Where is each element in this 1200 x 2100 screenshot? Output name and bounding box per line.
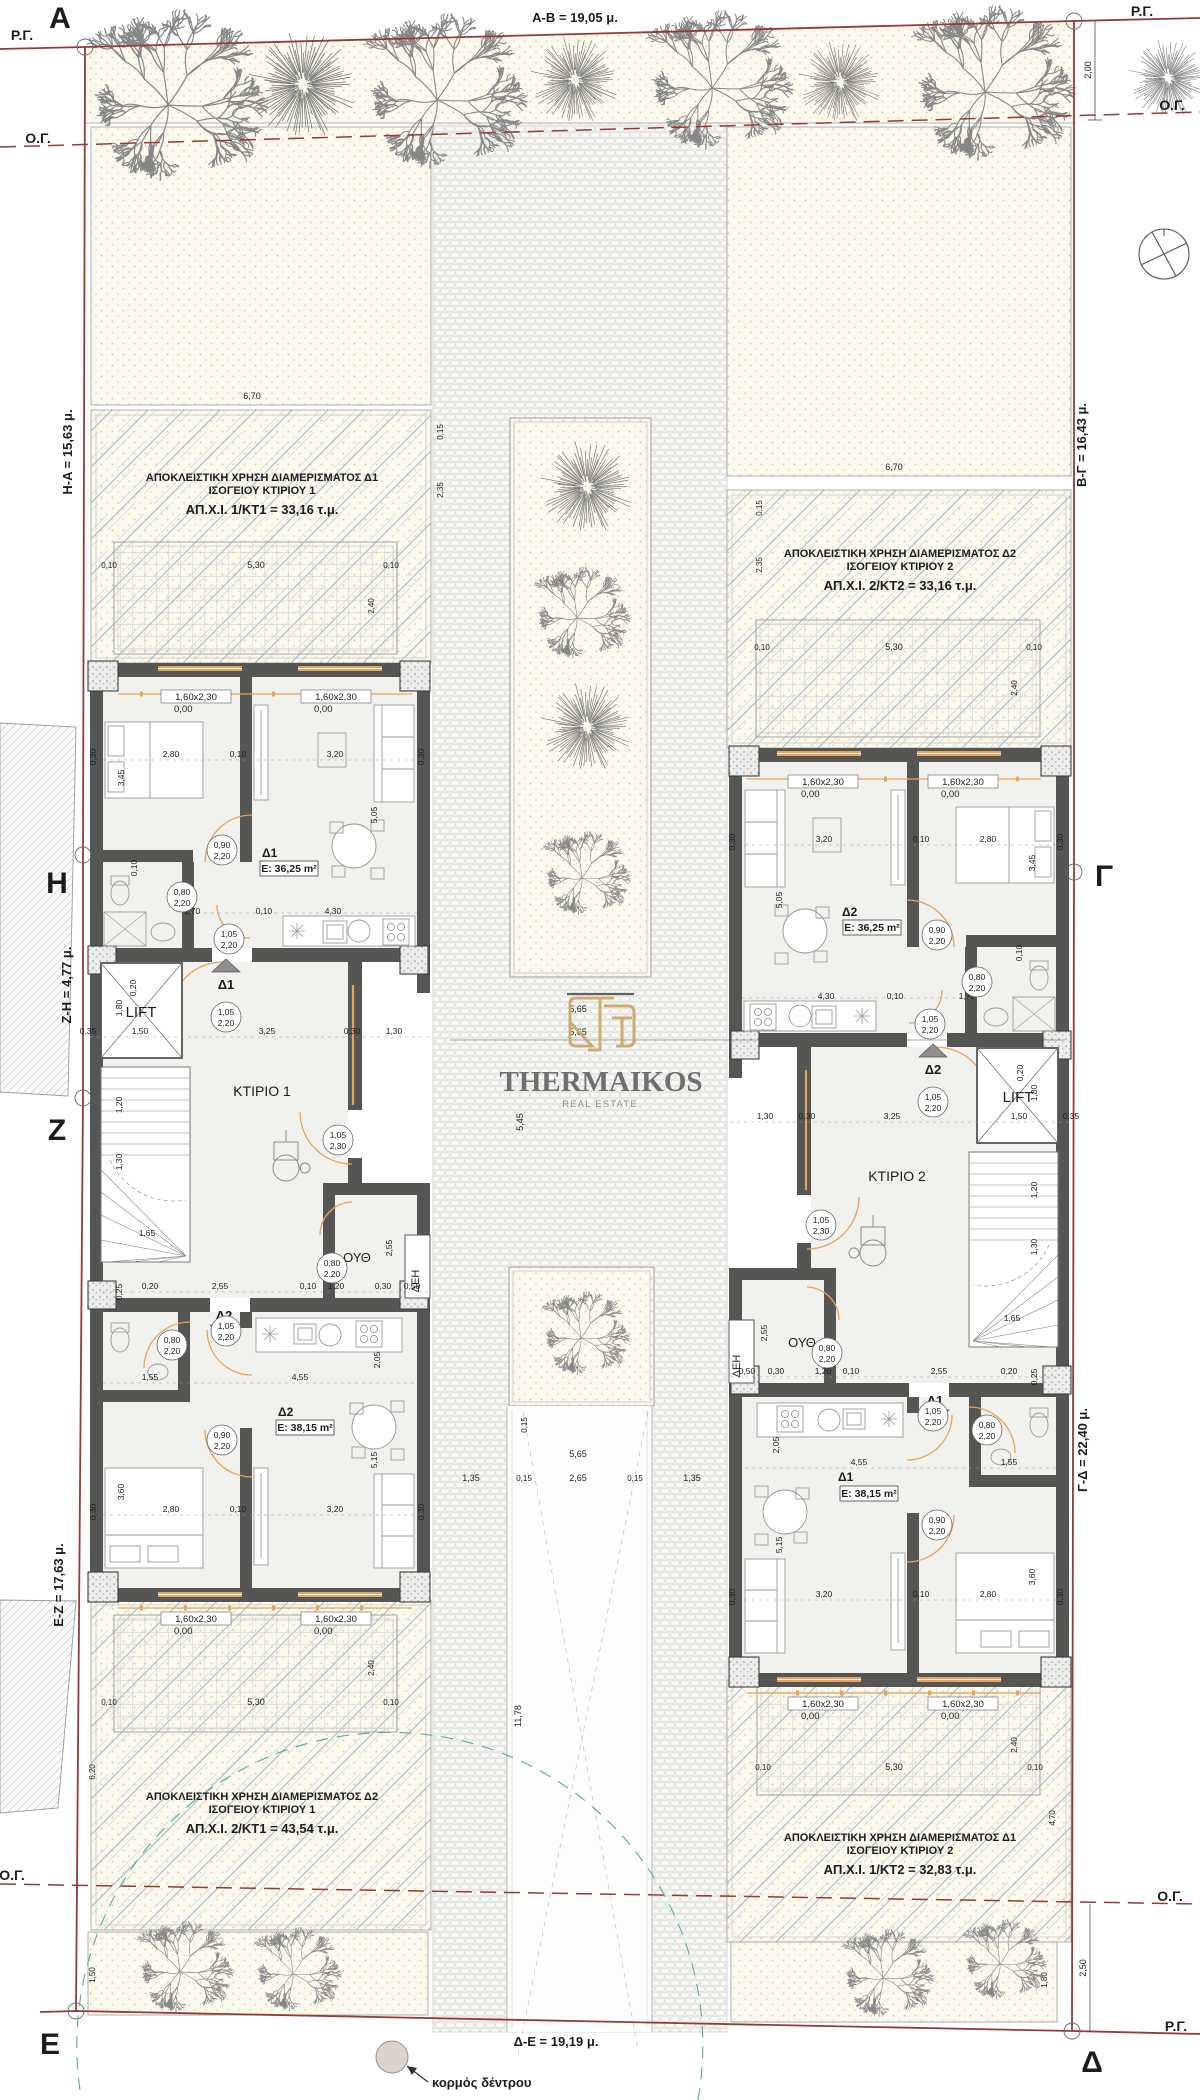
- svg-text:2,20: 2,20: [979, 1431, 996, 1441]
- svg-text:2,35: 2,35: [436, 482, 445, 498]
- svg-text:0,30: 0,30: [799, 1111, 816, 1121]
- svg-text:0,10: 0,10: [101, 561, 117, 570]
- svg-text:0,30: 0,30: [727, 1588, 737, 1605]
- svg-text:0,10: 0,10: [755, 1763, 771, 1772]
- svg-text:E: E: [40, 2028, 60, 2061]
- svg-text:2,20: 2,20: [922, 1025, 939, 1035]
- svg-text:6,20: 6,20: [88, 1764, 97, 1780]
- svg-text:ΑΠΟΚΛΕΙΣΤΙΚΗ ΧΡΗΣΗ ΔΙΑΜΕΡΙΣΜΑΤ: ΑΠΟΚΛΕΙΣΤΙΚΗ ΧΡΗΣΗ ΔΙΑΜΕΡΙΣΜΑΤΟΣ Δ1: [784, 1832, 1016, 1844]
- svg-text:ΙΣΟΓΕΙΟΥ ΚΤΙΡΙΟΥ 2: ΙΣΟΓΕΙΟΥ ΚΤΙΡΙΟΥ 2: [847, 561, 954, 573]
- svg-text:ΑΠ.Χ.Ι. 1/ΚΤ1 = 33,16 τ.μ.: ΑΠ.Χ.Ι. 1/ΚΤ1 = 33,16 τ.μ.: [186, 502, 339, 517]
- svg-text:E: 38,15 m²: E: 38,15 m²: [841, 1488, 897, 1500]
- svg-text:Δ1: Δ1: [262, 846, 278, 860]
- svg-text:3,45: 3,45: [116, 769, 126, 786]
- svg-text:0,30: 0,30: [416, 1503, 426, 1520]
- svg-text:0,30: 0,30: [1055, 1588, 1065, 1605]
- svg-text:5,15: 5,15: [369, 1451, 379, 1468]
- svg-text:0,35: 0,35: [80, 1026, 97, 1036]
- svg-text:Ο.Γ.: Ο.Γ.: [1157, 1888, 1183, 1904]
- svg-text:11,78: 11,78: [513, 1705, 523, 1727]
- svg-text:0,00: 0,00: [174, 704, 193, 715]
- svg-text:5,30: 5,30: [247, 1697, 265, 1707]
- svg-text:0,30: 0,30: [1055, 833, 1065, 850]
- svg-text:Z: Z: [48, 1114, 66, 1147]
- svg-text:0,10: 0,10: [101, 1698, 117, 1707]
- svg-text:0,30: 0,30: [88, 1503, 98, 1520]
- svg-text:0,20: 0,20: [1015, 1064, 1025, 1081]
- svg-text:A-B = 19,05 μ.: A-B = 19,05 μ.: [532, 10, 618, 25]
- svg-text:0,00: 0,00: [174, 1626, 193, 1637]
- svg-text:0,50: 0,50: [739, 1366, 756, 1376]
- svg-text:ΙΣΟΓΕΙΟΥ ΚΤΙΡΙΟΥ 1: ΙΣΟΓΕΙΟΥ ΚΤΙΡΙΟΥ 1: [209, 485, 316, 497]
- svg-text:0,10: 0,10: [230, 749, 247, 759]
- svg-text:0,10: 0,10: [913, 834, 930, 844]
- svg-text:1,05: 1,05: [221, 929, 238, 939]
- svg-text:0,10: 0,10: [383, 561, 399, 570]
- svg-text:0,10: 0,10: [1026, 643, 1042, 652]
- svg-text:0,10: 0,10: [843, 1366, 860, 1376]
- svg-text:2,20: 2,20: [925, 1103, 942, 1113]
- svg-text:0,30: 0,30: [88, 748, 98, 765]
- svg-text:0,20: 0,20: [128, 979, 138, 996]
- svg-text:2,40: 2,40: [367, 1660, 376, 1676]
- svg-text:0,80: 0,80: [819, 1343, 836, 1353]
- svg-text:0,15: 0,15: [436, 424, 445, 440]
- svg-text:1,50: 1,50: [1011, 1111, 1028, 1121]
- svg-text:5,65: 5,65: [569, 1004, 587, 1014]
- svg-text:0,30: 0,30: [344, 1026, 361, 1036]
- svg-text:2,20: 2,20: [214, 851, 231, 861]
- svg-text:Γ: Γ: [1095, 860, 1113, 893]
- svg-text:1,80: 1,80: [1040, 1972, 1049, 1988]
- svg-text:0,00: 0,00: [314, 1626, 333, 1637]
- svg-text:3,45: 3,45: [1027, 854, 1037, 871]
- svg-text:0,35: 0,35: [1063, 1111, 1080, 1121]
- svg-text:1,05: 1,05: [925, 1406, 942, 1416]
- svg-text:0,80: 0,80: [174, 887, 191, 897]
- svg-text:3,25: 3,25: [259, 1026, 276, 1036]
- svg-text:ΙΣΟΓΕΙΟΥ ΚΤΙΡΙΟΥ 2: ΙΣΟΓΕΙΟΥ ΚΤΙΡΙΟΥ 2: [847, 1845, 954, 1857]
- svg-text:3,20: 3,20: [816, 1589, 833, 1599]
- svg-text:ΑΠ.Χ.Ι. 2/ΚΤ1 = 43,54 τ.μ.: ΑΠ.Χ.Ι. 2/ΚΤ1 = 43,54 τ.μ.: [186, 1821, 339, 1836]
- svg-text:ΟΥΘ: ΟΥΘ: [343, 1250, 371, 1265]
- svg-text:3,60: 3,60: [1027, 1568, 1037, 1585]
- svg-text:Δ1: Δ1: [218, 977, 235, 992]
- svg-text:κορμός δέντρου: κορμός δέντρου: [432, 2075, 532, 2090]
- svg-text:ΑΠΟΚΛΕΙΣΤΙΚΗ ΧΡΗΣΗ ΔΙΑΜΕΡΙΣΜΑΤ: ΑΠΟΚΛΕΙΣΤΙΚΗ ΧΡΗΣΗ ΔΙΑΜΕΡΙΣΜΑΤΟΣ Δ1: [146, 472, 378, 484]
- svg-text:THERMAIKOS: THERMAIKOS: [499, 1066, 702, 1098]
- svg-text:3,60: 3,60: [116, 1483, 126, 1500]
- svg-text:1,65: 1,65: [139, 1228, 156, 1238]
- svg-text:0,10: 0,10: [1014, 944, 1024, 961]
- svg-text:2,55: 2,55: [931, 1366, 948, 1376]
- svg-text:5,30: 5,30: [885, 1762, 903, 1772]
- svg-text:0,15: 0,15: [520, 1417, 529, 1433]
- svg-text:1,60x2,30: 1,60x2,30: [942, 1699, 984, 1710]
- svg-text:2,30: 2,30: [813, 1226, 830, 1236]
- svg-text:E: 38,15 m²: E: 38,15 m²: [277, 1422, 333, 1434]
- svg-text:4,70: 4,70: [1048, 1810, 1057, 1826]
- svg-text:2,00: 2,00: [1083, 61, 1093, 79]
- svg-text:1,30: 1,30: [757, 1111, 774, 1121]
- svg-text:2,80: 2,80: [980, 834, 997, 844]
- svg-text:0,90: 0,90: [929, 1515, 946, 1525]
- svg-text:6,70: 6,70: [243, 391, 261, 401]
- svg-text:H-A = 15,63 μ.: H-A = 15,63 μ.: [60, 409, 75, 494]
- svg-text:LIFT: LIFT: [126, 1004, 157, 1021]
- svg-text:2,05: 2,05: [372, 1351, 382, 1368]
- svg-text:2,05: 2,05: [771, 1436, 781, 1453]
- svg-text:0,10: 0,10: [754, 643, 770, 652]
- svg-text:2,20: 2,20: [218, 1018, 235, 1028]
- svg-text:0,10: 0,10: [383, 1698, 399, 1707]
- svg-text:1,50: 1,50: [132, 1026, 149, 1036]
- svg-text:0,80: 0,80: [324, 1258, 341, 1268]
- svg-text:E-Z = 17,63 μ.: E-Z = 17,63 μ.: [51, 1543, 66, 1626]
- svg-text:1,20: 1,20: [1029, 1181, 1039, 1198]
- svg-text:0,20: 0,20: [142, 1281, 159, 1291]
- svg-text:1,60x2,30: 1,60x2,30: [175, 692, 217, 703]
- svg-text:5,45: 5,45: [515, 1113, 525, 1131]
- svg-text:ΚΤΙΡΙΟ 1: ΚΤΙΡΙΟ 1: [233, 1083, 291, 1099]
- svg-text:0,90: 0,90: [214, 840, 231, 850]
- svg-text:0,90: 0,90: [929, 925, 946, 935]
- svg-text:2,50: 2,50: [1078, 1959, 1088, 1977]
- svg-text:0,15: 0,15: [755, 500, 764, 516]
- svg-text:0,80: 0,80: [969, 972, 986, 982]
- svg-text:5,05: 5,05: [369, 806, 379, 823]
- svg-text:0,30: 0,30: [768, 1366, 785, 1376]
- svg-text:1,80: 1,80: [1029, 1084, 1039, 1101]
- svg-text:E: 36,25 m²: E: 36,25 m²: [261, 863, 317, 875]
- svg-text:0,30: 0,30: [727, 833, 737, 850]
- svg-text:Ο.Γ.: Ο.Γ.: [0, 1867, 25, 1883]
- svg-text:1,50: 1,50: [88, 1967, 97, 1983]
- svg-text:2,80: 2,80: [980, 1589, 997, 1599]
- svg-text:ΟΥΘ: ΟΥΘ: [788, 1335, 816, 1350]
- svg-text:0,00: 0,00: [801, 1711, 820, 1722]
- svg-text:0,90: 0,90: [214, 1430, 231, 1440]
- svg-text:2,20: 2,20: [218, 1332, 235, 1342]
- svg-text:0,15: 0,15: [627, 1474, 643, 1483]
- svg-text:1,35: 1,35: [462, 1473, 480, 1483]
- svg-text:3,25: 3,25: [884, 1111, 901, 1121]
- svg-text:0,20: 0,20: [1001, 1366, 1018, 1376]
- svg-text:2,40: 2,40: [367, 598, 376, 614]
- svg-text:1,05: 1,05: [330, 1130, 347, 1140]
- svg-text:Δ2: Δ2: [925, 1062, 942, 1077]
- svg-text:4,55: 4,55: [851, 1457, 868, 1467]
- svg-text:1,05: 1,05: [218, 1007, 235, 1017]
- svg-text:0,00: 0,00: [801, 789, 820, 800]
- svg-text:3,20: 3,20: [327, 1504, 344, 1514]
- svg-text:Ρ.Γ.: Ρ.Γ.: [11, 27, 33, 43]
- svg-text:1,60x2,30: 1,60x2,30: [802, 777, 844, 788]
- svg-text:1,30: 1,30: [386, 1026, 403, 1036]
- svg-text:2,20: 2,20: [174, 898, 191, 908]
- svg-text:1,60x2,30: 1,60x2,30: [942, 777, 984, 788]
- svg-text:B-Γ = 16,43 μ.: B-Γ = 16,43 μ.: [1074, 403, 1089, 487]
- svg-text:2,20: 2,20: [929, 936, 946, 946]
- svg-text:0,30: 0,30: [416, 748, 426, 765]
- svg-text:1,55: 1,55: [142, 1372, 159, 1382]
- svg-text:1,55: 1,55: [1001, 1457, 1018, 1467]
- svg-text:4,30: 4,30: [325, 906, 342, 916]
- svg-text:0,50: 0,50: [404, 1281, 421, 1291]
- svg-text:2,40: 2,40: [1010, 680, 1019, 696]
- svg-text:ΑΠ.Χ.Ι. 1/ΚΤ2 = 32,83 τ.μ.: ΑΠ.Χ.Ι. 1/ΚΤ2 = 32,83 τ.μ.: [824, 1862, 977, 1877]
- svg-text:5,65: 5,65: [569, 1449, 587, 1459]
- svg-text:0,00: 0,00: [314, 704, 333, 715]
- svg-text:0,10: 0,10: [913, 1589, 930, 1599]
- svg-text:ΑΠΟΚΛΕΙΣΤΙΚΗ ΧΡΗΣΗ ΔΙΑΜΕΡΙΣΜΑΤ: ΑΠΟΚΛΕΙΣΤΙΚΗ ΧΡΗΣΗ ΔΙΑΜΕΡΙΣΜΑΤΟΣ Δ2: [146, 1791, 378, 1803]
- svg-text:0,80: 0,80: [979, 1420, 996, 1430]
- svg-text:0,10: 0,10: [230, 1504, 247, 1514]
- svg-text:Δ: Δ: [1081, 2046, 1103, 2079]
- svg-text:1,05: 1,05: [922, 1014, 939, 1024]
- svg-text:4,55: 4,55: [292, 1372, 309, 1382]
- svg-text:2,20: 2,20: [819, 1354, 836, 1364]
- svg-text:5,30: 5,30: [247, 560, 265, 570]
- svg-text:2,20: 2,20: [929, 1526, 946, 1536]
- svg-text:Δ1: Δ1: [838, 1470, 854, 1484]
- svg-text:1,60x2,30: 1,60x2,30: [315, 1614, 357, 1625]
- svg-text:3,20: 3,20: [327, 749, 344, 759]
- svg-text:3,20: 3,20: [816, 834, 833, 844]
- svg-text:H: H: [46, 867, 68, 900]
- svg-text:0,10: 0,10: [256, 906, 273, 916]
- svg-text:1,05: 1,05: [218, 1321, 235, 1331]
- svg-text:Ρ.Γ.: Ρ.Γ.: [1165, 2018, 1187, 2034]
- svg-text:Δ2: Δ2: [842, 905, 858, 919]
- svg-text:5,15: 5,15: [774, 1536, 784, 1553]
- svg-text:0,00: 0,00: [941, 1711, 960, 1722]
- svg-text:1,60x2,30: 1,60x2,30: [802, 1699, 844, 1710]
- svg-text:Δ2: Δ2: [278, 1405, 294, 1419]
- svg-text:Ο.Γ.: Ο.Γ.: [1159, 97, 1185, 113]
- svg-text:1,60x2,30: 1,60x2,30: [315, 692, 357, 703]
- svg-text:0,10: 0,10: [129, 859, 139, 876]
- svg-text:Γ-Δ = 22,40 μ.: Γ-Δ = 22,40 μ.: [1075, 1408, 1090, 1492]
- svg-text:0,80: 0,80: [164, 1335, 181, 1345]
- svg-text:0,25: 0,25: [1029, 1368, 1039, 1385]
- svg-text:2,55: 2,55: [759, 1324, 769, 1341]
- svg-text:1,65: 1,65: [1004, 1313, 1021, 1323]
- svg-text:ΑΠ.Χ.Ι. 2/ΚΤ2 = 33,16 τ.μ.: ΑΠ.Χ.Ι. 2/ΚΤ2 = 33,16 τ.μ.: [824, 578, 977, 593]
- svg-text:0,30: 0,30: [375, 1281, 392, 1291]
- svg-text:Z-H = 4,77 μ.: Z-H = 4,77 μ.: [59, 947, 74, 1024]
- svg-text:2,20: 2,20: [221, 940, 238, 950]
- svg-text:6,70: 6,70: [885, 462, 903, 472]
- svg-text:2,55: 2,55: [384, 1239, 394, 1256]
- svg-text:0,10: 0,10: [887, 991, 904, 1001]
- svg-text:2,20: 2,20: [969, 983, 986, 993]
- svg-text:2,20: 2,20: [324, 1269, 341, 1279]
- svg-text:Δ-Ε = 19,19 μ.: Δ-Ε = 19,19 μ.: [514, 2034, 599, 2049]
- svg-text:1,60x2,30: 1,60x2,30: [175, 1614, 217, 1625]
- svg-text:REAL ESTATE: REAL ESTATE: [562, 1099, 638, 1110]
- svg-text:2,55: 2,55: [212, 1281, 229, 1291]
- svg-text:ΚΤΙΡΙΟ 2: ΚΤΙΡΙΟ 2: [868, 1168, 926, 1184]
- svg-text:2,20: 2,20: [214, 1441, 231, 1451]
- svg-text:A: A: [49, 2, 71, 35]
- svg-text:E: 36,25 m²: E: 36,25 m²: [844, 922, 900, 934]
- svg-text:0,15: 0,15: [516, 1474, 532, 1483]
- svg-text:4,30: 4,30: [818, 991, 835, 1001]
- svg-text:5,05: 5,05: [774, 891, 784, 908]
- svg-text:Ρ.Γ.: Ρ.Γ.: [1131, 3, 1153, 19]
- svg-text:ΙΣΟΓΕΙΟΥ ΚΤΙΡΙΟΥ 1: ΙΣΟΓΕΙΟΥ ΚΤΙΡΙΟΥ 1: [209, 1804, 316, 1816]
- svg-text:2,80: 2,80: [163, 749, 180, 759]
- svg-text:2,80: 2,80: [163, 1504, 180, 1514]
- svg-text:1,35: 1,35: [683, 1473, 701, 1483]
- svg-text:Ο.Γ.: Ο.Γ.: [25, 130, 51, 146]
- svg-text:0,10: 0,10: [300, 1281, 317, 1291]
- svg-text:0,25: 0,25: [114, 1283, 124, 1300]
- svg-text:1,05: 1,05: [813, 1215, 830, 1225]
- svg-text:2,35: 2,35: [755, 557, 764, 573]
- svg-text:ΑΠΟΚΛΕΙΣΤΙΚΗ ΧΡΗΣΗ ΔΙΑΜΕΡΙΣΜΑΤ: ΑΠΟΚΛΕΙΣΤΙΚΗ ΧΡΗΣΗ ΔΙΑΜΕΡΙΣΜΑΤΟΣ Δ2: [784, 548, 1016, 560]
- svg-text:1,05: 1,05: [925, 1092, 942, 1102]
- svg-text:1,30: 1,30: [1029, 1238, 1039, 1255]
- svg-text:1,30: 1,30: [114, 1153, 124, 1170]
- svg-text:0,00: 0,00: [941, 789, 960, 800]
- svg-text:2,20: 2,20: [164, 1346, 181, 1356]
- svg-text:1,80: 1,80: [114, 999, 124, 1016]
- svg-text:2,65: 2,65: [569, 1473, 587, 1483]
- svg-text:1,20: 1,20: [114, 1096, 124, 1113]
- svg-text:2,40: 2,40: [1010, 1737, 1019, 1753]
- svg-text:5,30: 5,30: [885, 642, 903, 652]
- svg-text:2,20: 2,20: [925, 1417, 942, 1427]
- svg-text:2,30: 2,30: [330, 1141, 347, 1151]
- svg-text:0,10: 0,10: [1027, 1763, 1043, 1772]
